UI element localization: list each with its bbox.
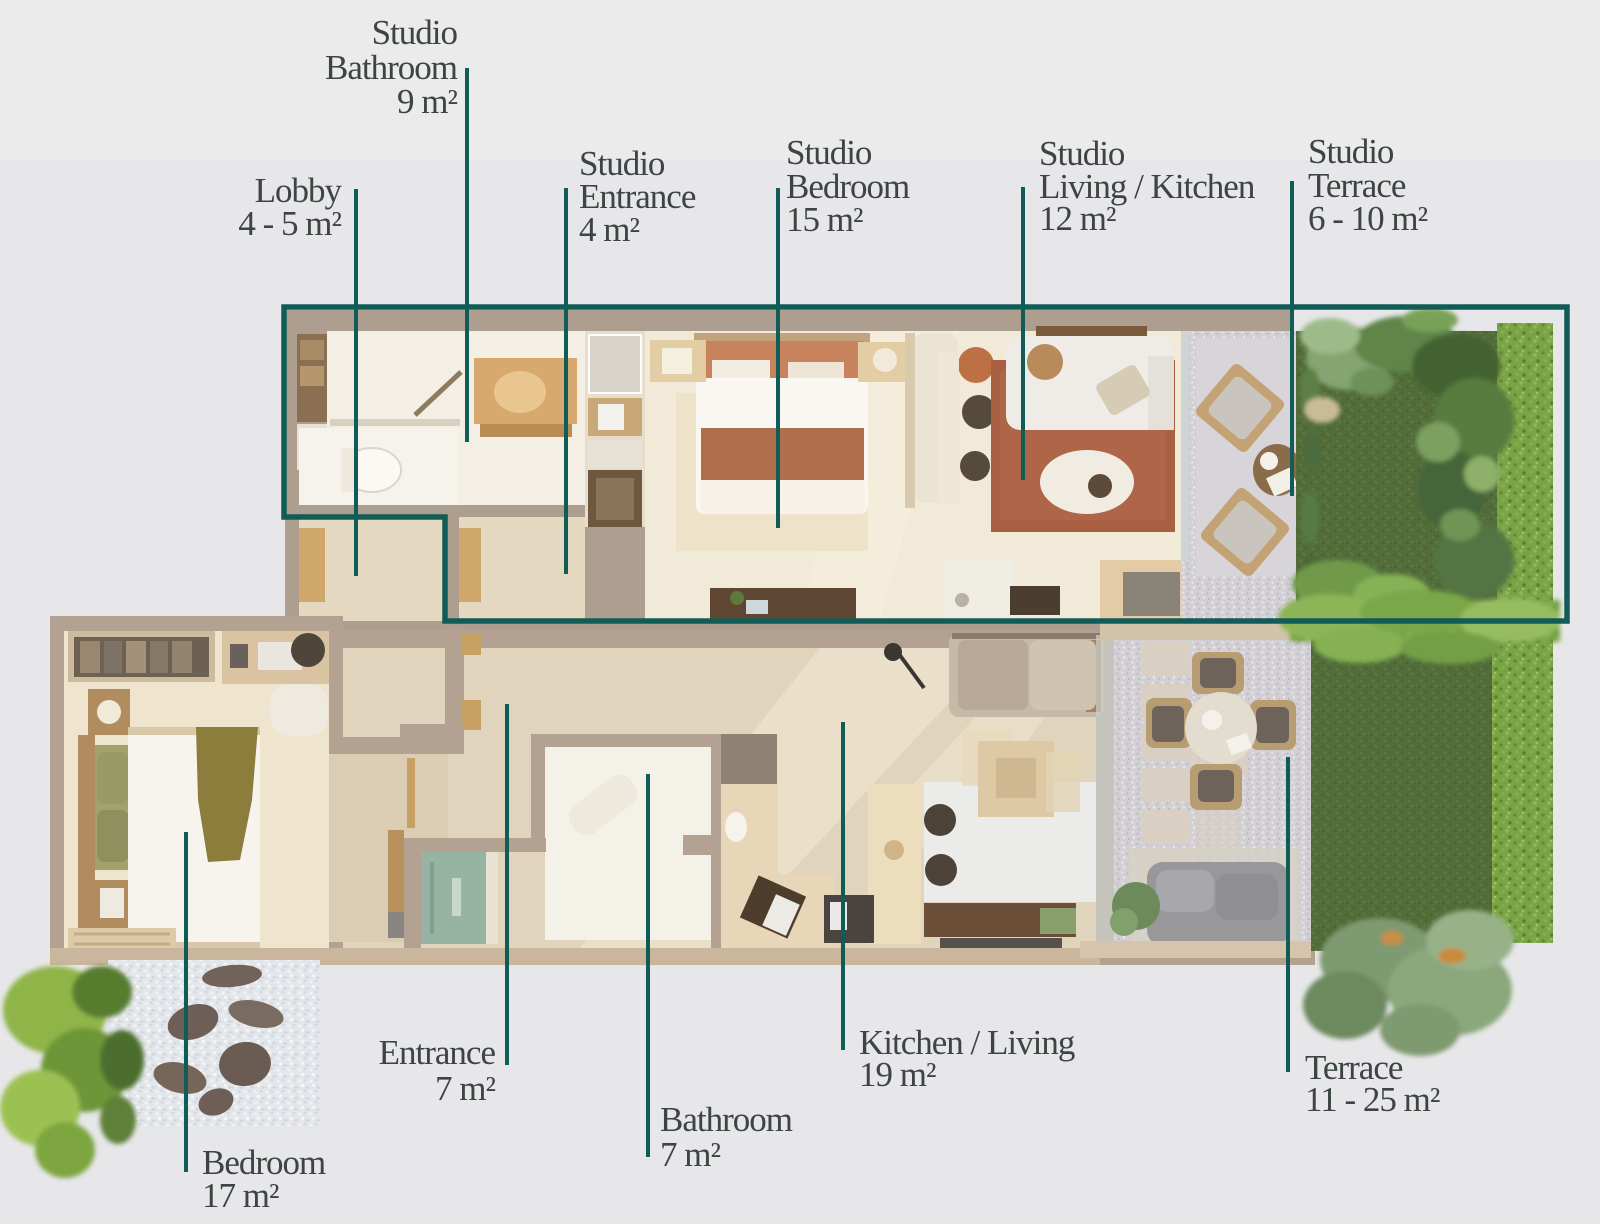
svg-text:17 m²: 17 m² (202, 1176, 279, 1215)
svg-text:11 - 25 m²: 11 - 25 m² (1305, 1080, 1440, 1119)
svg-text:15 m²: 15 m² (786, 200, 863, 239)
svg-text:7 m²: 7 m² (435, 1069, 495, 1108)
svg-text:6 - 10 m²: 6 - 10 m² (1308, 199, 1428, 238)
svg-text:Studio: Studio (372, 13, 458, 52)
svg-text:9 m²: 9 m² (397, 82, 457, 121)
svg-text:Entrance: Entrance (379, 1033, 496, 1072)
svg-text:7 m²: 7 m² (660, 1135, 720, 1174)
svg-text:12 m²: 12 m² (1039, 199, 1116, 238)
svg-text:19 m²: 19 m² (859, 1055, 936, 1094)
svg-text:Bathroom: Bathroom (660, 1100, 793, 1139)
svg-text:4 - 5 m²: 4 - 5 m² (238, 204, 341, 243)
svg-text:4 m²: 4 m² (579, 210, 639, 249)
